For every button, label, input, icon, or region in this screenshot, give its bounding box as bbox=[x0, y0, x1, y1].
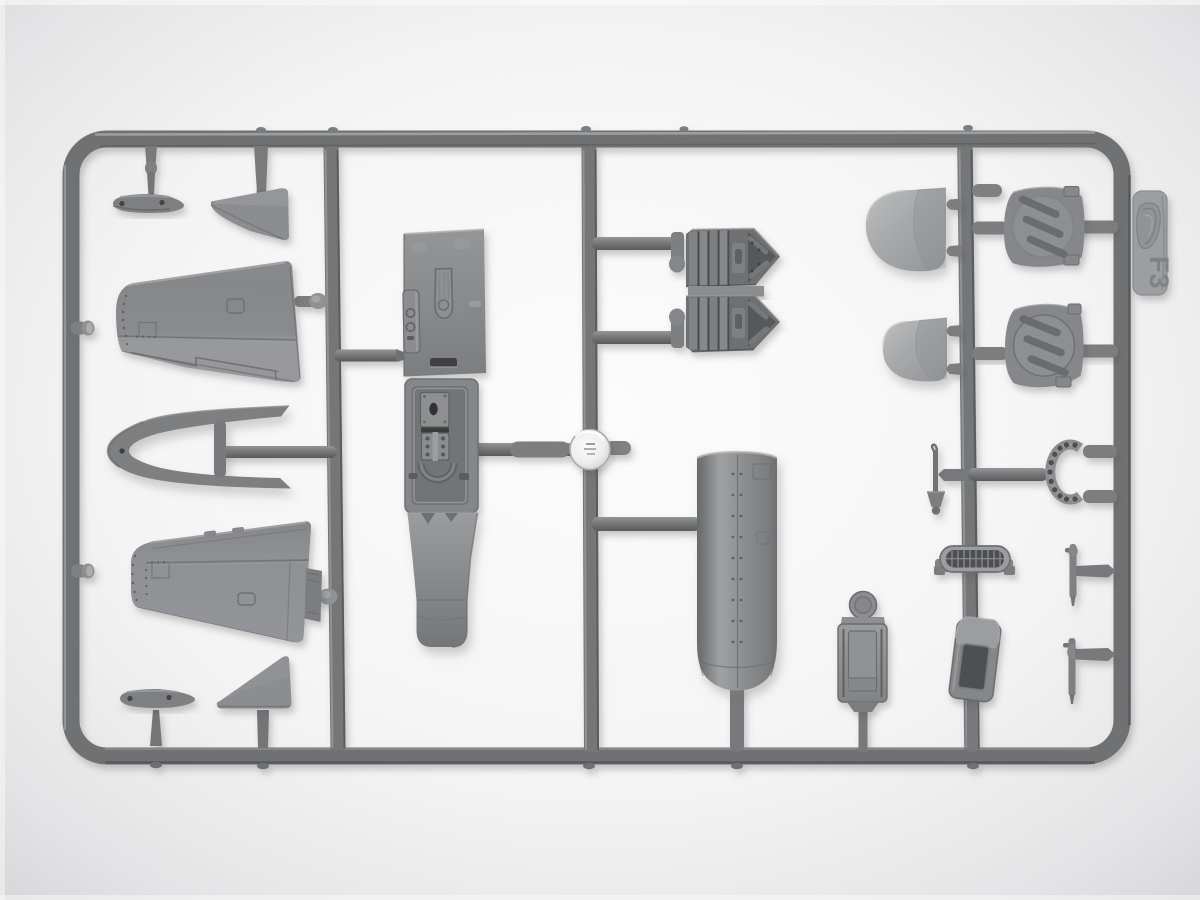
svg-text:F3: F3 bbox=[1144, 256, 1174, 290]
